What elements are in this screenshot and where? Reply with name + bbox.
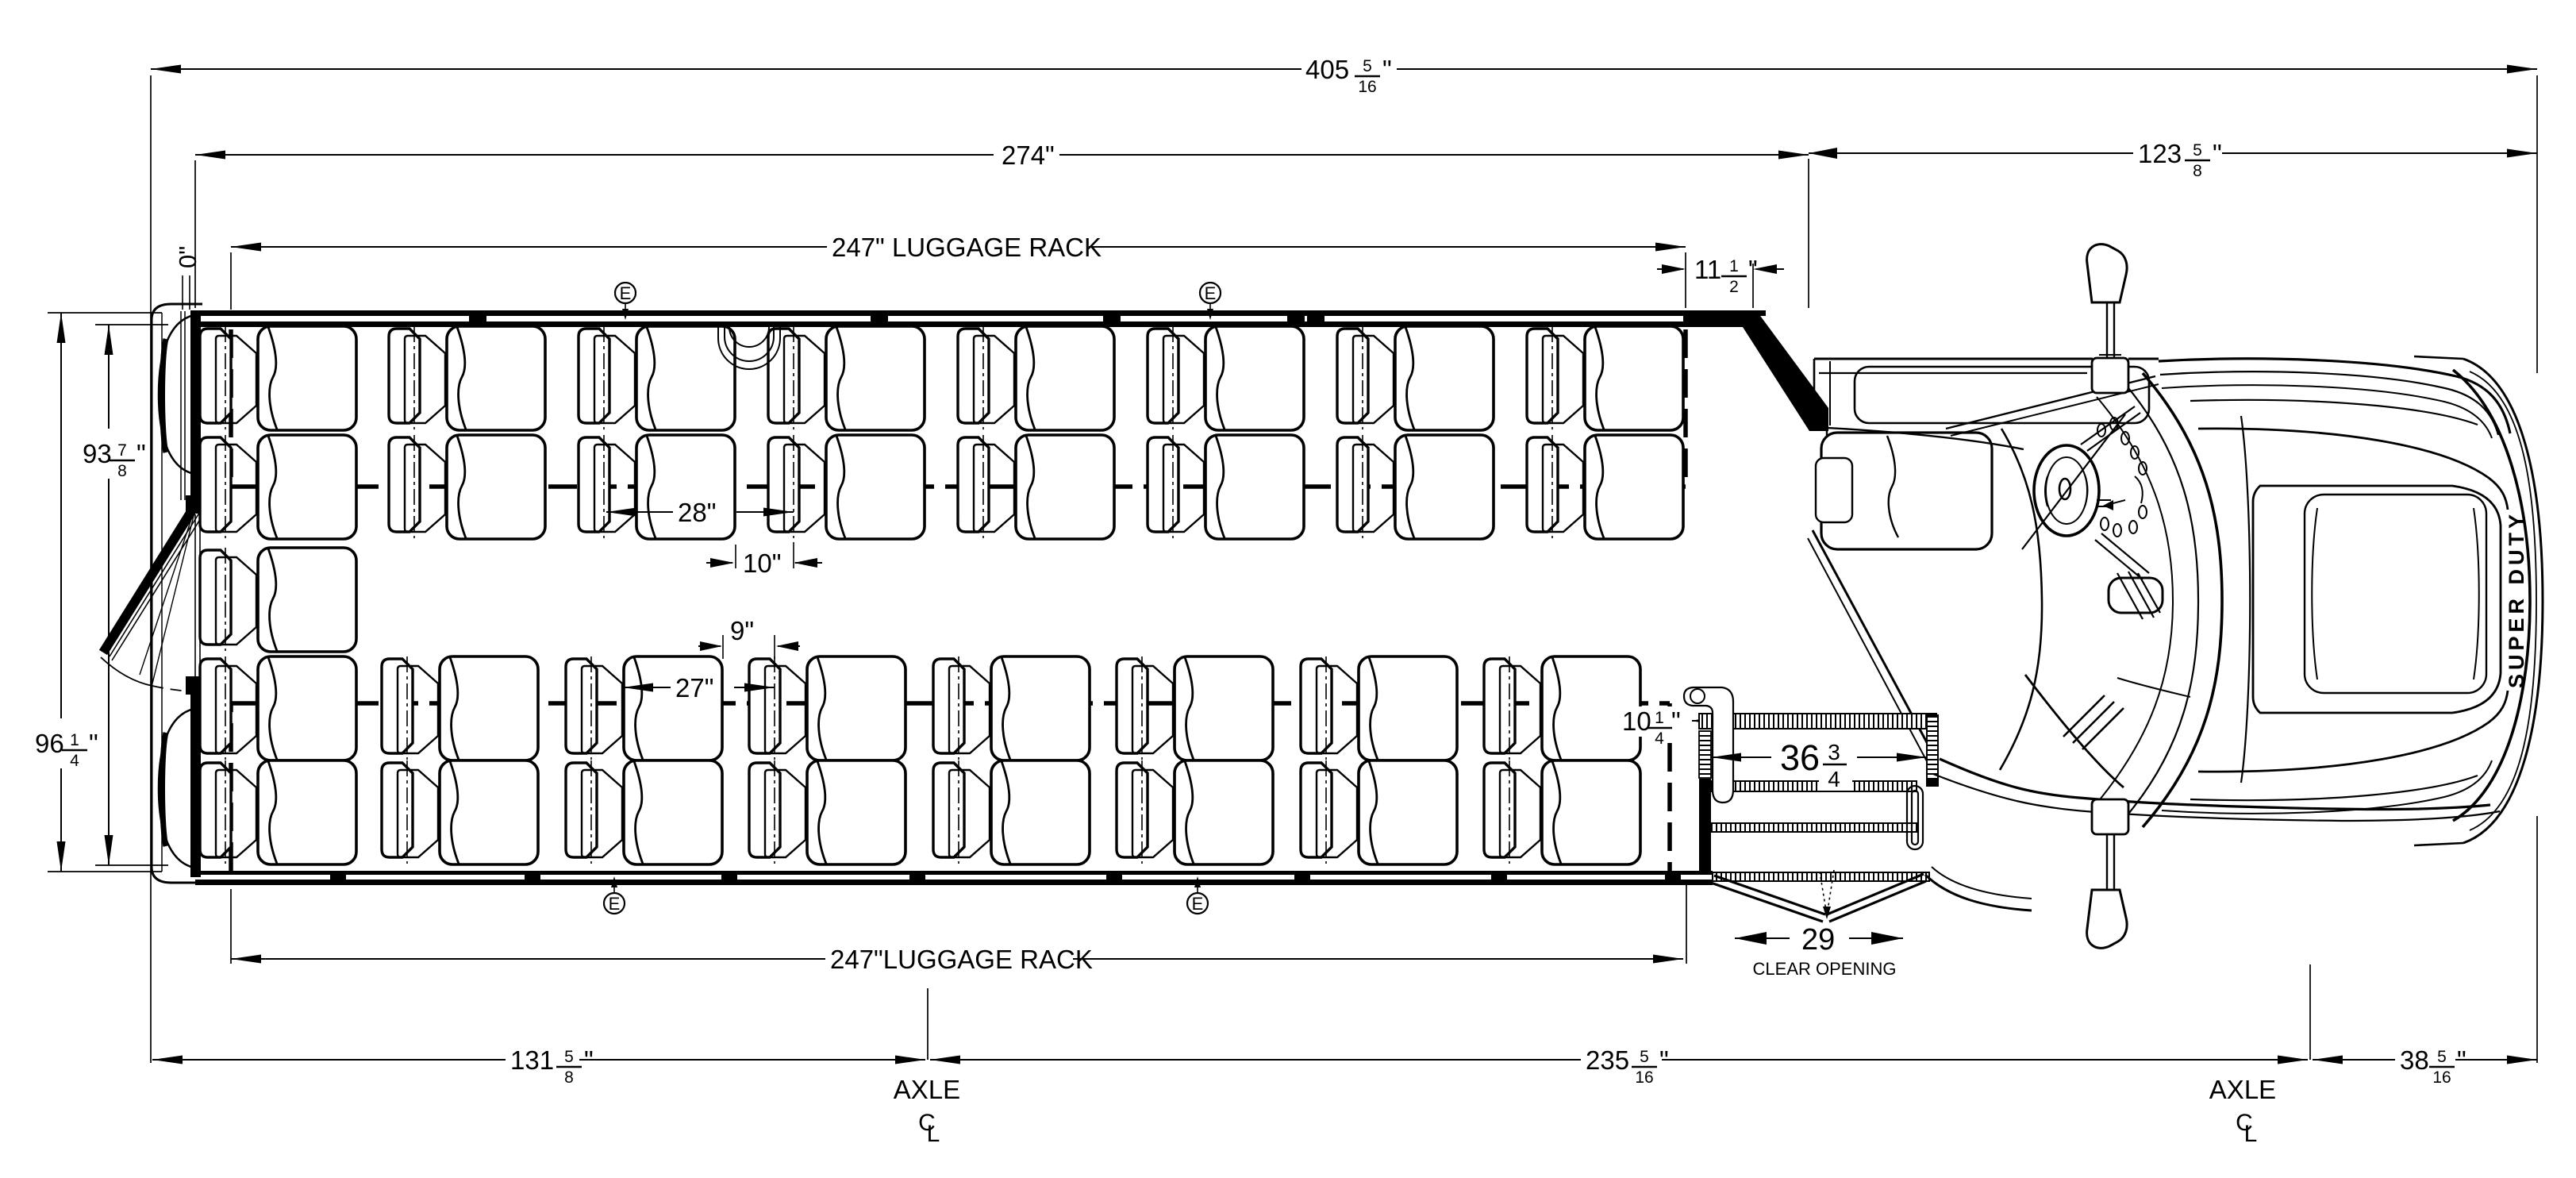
svg-text:AXLE: AXLE [2209,1075,2276,1104]
svg-text:AXLE: AXLE [894,1075,960,1104]
svg-text:8: 8 [117,462,127,480]
svg-text:": " [1382,55,1392,84]
svg-text:9": 9" [730,616,754,645]
svg-text:1: 1 [70,731,79,749]
svg-text:405: 405 [1305,55,1349,84]
svg-text:CLEAR OPENING: CLEAR OPENING [1753,959,1897,979]
svg-text:5: 5 [1640,1048,1649,1066]
svg-text:16: 16 [1358,78,1376,96]
svg-text:E: E [620,283,632,303]
svg-text:": " [2213,139,2222,168]
svg-text:1: 1 [1655,709,1664,727]
svg-text:0": 0" [174,246,202,268]
svg-text:E: E [609,894,621,914]
svg-text:1: 1 [1729,257,1739,275]
svg-text:10: 10 [1622,706,1651,736]
svg-text:": " [1659,1045,1669,1075]
svg-text:38: 38 [2400,1045,2429,1075]
svg-text:8: 8 [2193,162,2202,180]
svg-text:4: 4 [70,752,79,770]
svg-text:123: 123 [2138,139,2182,168]
svg-text:": " [1671,706,1681,736]
svg-text:5: 5 [564,1048,574,1066]
svg-text:5: 5 [2193,141,2202,160]
svg-text:247"LUGGAGE RACK: 247"LUGGAGE RACK [830,945,1093,974]
svg-text:274": 274" [1002,141,1055,170]
svg-text:": " [136,439,146,468]
svg-text:": " [584,1045,594,1075]
svg-text:36: 36 [1780,737,1820,778]
svg-text:131: 131 [510,1045,554,1075]
svg-text:27": 27" [675,673,713,703]
svg-text:29: 29 [1801,923,1835,957]
svg-text:3: 3 [1828,740,1840,764]
svg-text:": " [1748,255,1758,284]
svg-text:4: 4 [1828,767,1840,791]
svg-text:93: 93 [83,439,112,468]
svg-text:E: E [1205,283,1217,303]
svg-text:8: 8 [564,1068,574,1087]
svg-text:96: 96 [35,729,64,758]
svg-text:": " [2457,1045,2466,1075]
svg-text:L: L [2244,1121,2258,1147]
svg-text:10": 10" [743,549,781,578]
svg-text:28": 28" [678,498,716,527]
svg-text:16: 16 [1635,1068,1653,1087]
svg-text:11: 11 [1694,255,1721,284]
svg-text:E: E [1192,894,1204,914]
svg-text:": " [89,729,98,758]
svg-text:2: 2 [1729,278,1739,296]
svg-text:235: 235 [1586,1045,1629,1075]
svg-text:7: 7 [117,441,127,460]
svg-text:16: 16 [2432,1068,2451,1087]
svg-text:4: 4 [1655,730,1664,748]
svg-text:SUPER DUTY: SUPER DUTY [2505,510,2528,688]
svg-text:247" LUGGAGE RACK: 247" LUGGAGE RACK [832,233,1102,262]
svg-text:L: L [927,1121,940,1147]
svg-text:5: 5 [1363,57,1372,75]
svg-text:5: 5 [2437,1048,2447,1066]
